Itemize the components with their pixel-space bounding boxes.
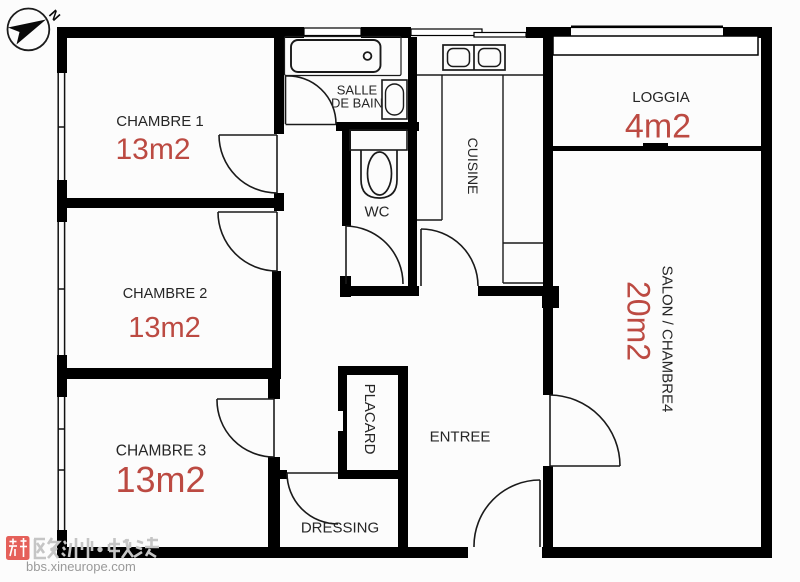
svg-text:4m2: 4m2 (625, 108, 691, 146)
svg-text:DE BAIN: DE BAIN (331, 96, 383, 111)
svg-text:DRESSING: DRESSING (301, 520, 379, 537)
svg-text:CHAMBRE 1: CHAMBRE 1 (116, 113, 204, 130)
svg-text:CUISINE: CUISINE (465, 138, 481, 195)
svg-text:13m2: 13m2 (115, 459, 205, 500)
svg-text:PLACARD: PLACARD (361, 384, 378, 455)
svg-text:LOGGIA: LOGGIA (632, 89, 690, 106)
svg-text:ENTREE: ENTREE (430, 429, 491, 446)
svg-text:CHAMBRE 3: CHAMBRE 3 (116, 443, 206, 460)
svg-text:bbs.xineurope.com: bbs.xineurope.com (26, 559, 136, 574)
svg-text:13m2: 13m2 (128, 312, 201, 344)
svg-text:CHAMBRE 2: CHAMBRE 2 (123, 286, 208, 302)
svg-text:20m2: 20m2 (621, 281, 657, 361)
svg-text:13m2: 13m2 (115, 133, 190, 166)
svg-text:WC: WC (365, 204, 390, 221)
svg-text:SALON / CHAMBRE4: SALON / CHAMBRE4 (659, 266, 676, 413)
